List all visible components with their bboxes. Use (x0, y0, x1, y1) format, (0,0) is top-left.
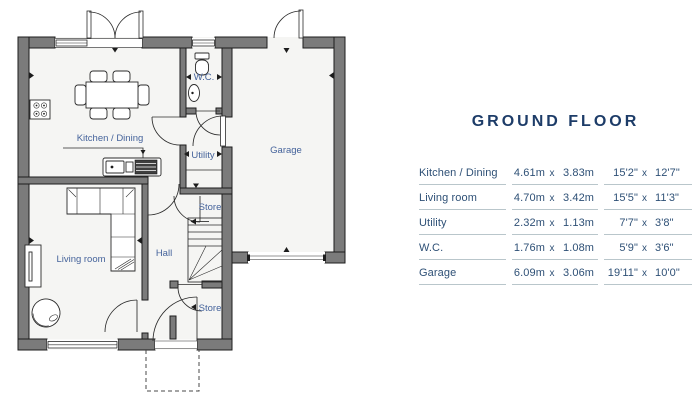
imperial-depth-cell: 10'0" (651, 267, 692, 279)
imperial-separator: x (638, 193, 651, 204)
imperial-width-cell: 5'9" (602, 242, 638, 254)
metric-depth-cell: 3.06m (559, 267, 602, 279)
dimension-row: Kitchen / Dining4.61mx3.83m15'2"x12'7" (419, 160, 692, 185)
room-label-kitchen-dining: Kitchen / Dining (77, 133, 144, 144)
row-rule-segment (604, 234, 692, 235)
row-rule (419, 284, 692, 285)
dimensions-table-body: Kitchen / Dining4.61mx3.83m15'2"x12'7"Li… (419, 160, 692, 285)
row-rule-segment (512, 209, 598, 210)
row-rule-segment (512, 284, 598, 285)
dimension-row: Living room4.70mx3.42m15'5"x11'3" (419, 185, 692, 210)
basin (189, 85, 200, 102)
porch-outline (146, 350, 199, 391)
room-name-cell: Living room (419, 192, 512, 204)
imperial-depth-cell: 12'7" (651, 167, 692, 179)
page-title: GROUND FLOOR (419, 111, 692, 133)
floor-plan: Kitchen / DiningLiving roomHallUtilityW.… (0, 0, 410, 403)
room-label-store-upper: Store (199, 202, 222, 213)
row-rule-segment (419, 184, 506, 185)
floor-plan-svg: Kitchen / DiningLiving roomHallUtilityW.… (0, 0, 410, 403)
imperial-separator: x (638, 268, 651, 279)
row-rule (419, 209, 692, 210)
metric-width-cell: 6.09m (512, 267, 545, 279)
row-rule-segment (604, 209, 692, 210)
row-rule-segment (419, 234, 506, 235)
imperial-width-cell: 15'5" (602, 192, 638, 204)
row-rule-segment (419, 209, 506, 210)
metric-width-cell: 2.32m (512, 217, 545, 229)
row-rule (419, 259, 692, 260)
row-rule (419, 234, 692, 235)
room-label-store-lower: Store (199, 303, 222, 314)
row-rule-segment (512, 259, 598, 260)
row-rule-segment (604, 284, 692, 285)
row-rule-segment (512, 234, 598, 235)
dimensions-panel: GROUND FLOOR Kitchen / Dining4.61mx3.83m… (419, 111, 692, 285)
imperial-width-cell: 19'11" (602, 267, 638, 279)
row-rule-segment (419, 284, 506, 285)
dimension-row: Utility2.32mx1.13m7'7"x3'8" (419, 210, 692, 235)
metric-width-cell: 4.70m (512, 192, 545, 204)
french-door-right-leaf (139, 11, 143, 38)
french-door-left-leaf (87, 11, 91, 38)
dimension-row: Garage6.09mx3.06m19'11"x10'0" (419, 260, 692, 285)
metric-separator: x (545, 218, 559, 229)
row-rule-segment (512, 184, 598, 185)
room-name-cell: W.C. (419, 242, 512, 254)
imperial-width-cell: 7'7" (602, 217, 638, 229)
room-name-cell: Utility (419, 217, 512, 229)
room-label-wc: W.C. (194, 72, 215, 83)
hob (30, 100, 50, 119)
metric-separator: x (545, 168, 559, 179)
metric-separator: x (545, 268, 559, 279)
room-name-cell: Garage (419, 267, 512, 279)
page: { "colors": { "title": "#1d3c68", "table… (0, 0, 700, 403)
dimension-row-cells: Garage6.09mx3.06m19'11"x10'0" (419, 260, 692, 284)
garage-side-door-leaf (299, 10, 303, 38)
metric-separator: x (545, 193, 559, 204)
garage-internal-door-leaf (221, 116, 226, 146)
imperial-depth-cell: 11'3" (651, 192, 692, 204)
dimension-row: W.C.1.76mx1.08m5'9"x3'6" (419, 235, 692, 260)
room-label-living-room: Living room (56, 254, 105, 265)
metric-depth-cell: 1.08m (559, 242, 602, 254)
row-rule (419, 184, 692, 185)
row-rule-segment (604, 184, 692, 185)
metric-width-cell: 1.76m (512, 242, 545, 254)
row-rule-segment (604, 259, 692, 260)
tv-unit (25, 245, 41, 287)
dimension-row-cells: Kitchen / Dining4.61mx3.83m15'2"x12'7" (419, 160, 692, 184)
imperial-separator: x (638, 218, 651, 229)
metric-depth-cell: 3.83m (559, 167, 602, 179)
room-label-garage: Garage (270, 145, 302, 156)
row-rule-segment (419, 259, 506, 260)
imperial-separator: x (638, 168, 651, 179)
imperial-depth-cell: 3'6" (651, 242, 692, 254)
room-name-cell: Kitchen / Dining (419, 167, 512, 179)
metric-width-cell: 4.61m (512, 167, 545, 179)
imperial-separator: x (638, 243, 651, 254)
imperial-width-cell: 15'2" (602, 167, 638, 179)
metric-separator: x (545, 243, 559, 254)
garage-door (248, 252, 325, 263)
dimension-row-cells: Living room4.70mx3.42m15'5"x11'3" (419, 185, 692, 209)
dimension-row-cells: W.C.1.76mx1.08m5'9"x3'6" (419, 235, 692, 259)
metric-depth-cell: 1.13m (559, 217, 602, 229)
imperial-depth-cell: 3'8" (651, 217, 692, 229)
dimension-row-cells: Utility2.32mx1.13m7'7"x3'8" (419, 210, 692, 234)
room-label-utility: Utility (191, 150, 214, 161)
room-label-hall: Hall (156, 248, 172, 259)
metric-depth-cell: 3.42m (559, 192, 602, 204)
